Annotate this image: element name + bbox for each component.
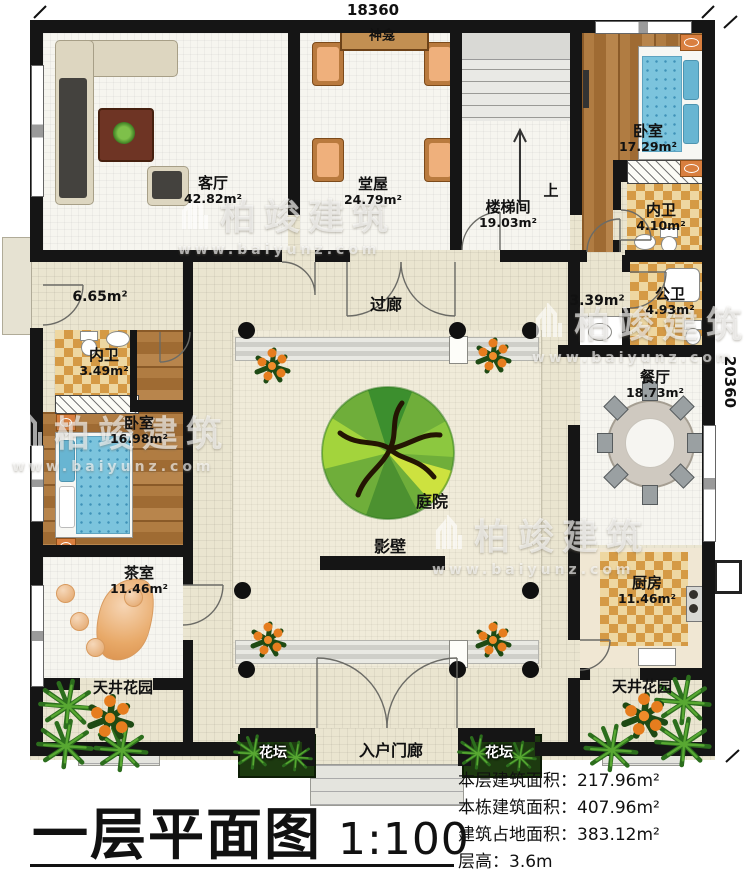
window xyxy=(703,425,716,542)
kitchen-sink xyxy=(638,648,676,666)
bed-pillow xyxy=(683,104,699,144)
room-label-courtyard: 庭院 xyxy=(416,493,448,511)
label-flowerbed-e: 花坛 xyxy=(485,745,513,761)
toilet xyxy=(685,328,701,345)
wall-segment xyxy=(183,640,193,756)
column-dot xyxy=(238,322,255,339)
floor-plan-page: 柏竣建筑 www.baiyunz.com 柏竣建筑 www.baiyunz.co… xyxy=(0,0,750,890)
wall-segment xyxy=(622,255,630,272)
wall-segment xyxy=(137,400,183,412)
room-label-shrine: 神龛 xyxy=(369,30,395,45)
wall-segment xyxy=(613,182,621,210)
wall-segment xyxy=(625,250,715,262)
stove-burner xyxy=(689,604,698,613)
room-label-corridor: 过廊 xyxy=(370,296,402,314)
column-dot xyxy=(522,582,539,599)
wall-segment xyxy=(315,250,350,262)
bed-pillow xyxy=(59,486,75,528)
tea-cushion xyxy=(70,612,89,631)
wall-segment xyxy=(568,678,580,756)
stat-line: 本栋建筑面积：407.96m² xyxy=(458,795,660,822)
nightstand xyxy=(56,414,76,431)
stat-line: 建筑占地面积：383.12m² xyxy=(458,822,660,849)
wall-segment xyxy=(30,742,240,756)
plan-title: 一层平面图1:100 xyxy=(32,790,470,871)
room-label-porch: 入户门廊 xyxy=(359,742,423,760)
wash-sink xyxy=(588,323,612,341)
wall-segment xyxy=(568,425,580,640)
wall-segment xyxy=(702,20,715,756)
courtyard-floor xyxy=(232,330,542,668)
dining-chair xyxy=(642,485,658,505)
room-label-bath-ne: 内卫 4.10m² xyxy=(636,202,685,234)
column-dot xyxy=(522,322,539,339)
tea-cushion xyxy=(56,584,75,603)
wall-segment xyxy=(535,742,715,756)
wall-segment xyxy=(458,728,471,766)
room-label-living: 客厅 42.82m² xyxy=(184,175,242,207)
dimension-top: 18360 xyxy=(347,1,399,19)
dining-chair xyxy=(597,433,613,453)
walkway-north xyxy=(235,337,539,361)
wall-segment xyxy=(288,33,300,215)
dining-chair xyxy=(687,433,703,453)
screen-wall xyxy=(320,556,445,570)
walkway-south xyxy=(235,640,539,664)
armchair-cushion xyxy=(152,171,182,199)
pillar xyxy=(449,336,468,364)
wall-segment xyxy=(613,160,627,182)
label-entry-area: 6.65m² xyxy=(72,289,127,305)
label-wash-area: 3.39m² xyxy=(569,293,624,309)
window xyxy=(595,21,692,34)
washbasin xyxy=(634,234,656,250)
wall-segment xyxy=(613,240,621,252)
bedroom-ne-cabinet xyxy=(583,70,589,108)
bedroom-ne-vestibule xyxy=(582,160,613,252)
stat-line: 层高：3.6m xyxy=(458,849,660,876)
nightstand xyxy=(680,160,703,177)
column-dot xyxy=(238,661,255,678)
wall-segment xyxy=(580,668,590,680)
room-label-bath-w: 内卫 3.49m² xyxy=(79,347,128,379)
wall-segment xyxy=(43,678,80,690)
stair-landing xyxy=(462,33,570,60)
stair-up-label: 上 xyxy=(543,182,558,199)
wall-segment xyxy=(130,330,137,412)
hall-chair xyxy=(312,138,344,182)
room-label-patio-se: 天井花园 xyxy=(612,678,672,695)
room-label-public-bath: 公卫 4.93m² xyxy=(645,286,694,318)
room-label-tea: 茶室 11.46m² xyxy=(110,565,168,597)
room-label-kitchen: 厨房 11.46m² xyxy=(618,575,676,607)
room-label-bedroom-w: 卧室 16.98m² xyxy=(110,415,168,447)
wall-segment xyxy=(43,545,183,557)
wall-segment xyxy=(450,33,462,250)
column-dot xyxy=(449,322,466,339)
plan-stats: 本层建筑面积：217.96m² 本栋建筑面积：407.96m² 建筑占地面积：3… xyxy=(458,768,660,876)
label-screen-wall: 影壁 xyxy=(374,538,406,556)
wall-segment xyxy=(183,262,193,585)
window xyxy=(31,65,44,197)
wall-segment xyxy=(30,328,43,756)
bed-mattress xyxy=(76,436,130,534)
window xyxy=(31,585,44,687)
flue-box xyxy=(714,560,742,594)
stat-line: 本层建筑面积：217.96m² xyxy=(458,768,660,795)
column-dot xyxy=(522,661,539,678)
side-porch xyxy=(2,237,32,335)
column-dot xyxy=(234,582,251,599)
dimension-right: 20360 xyxy=(721,356,739,408)
room-label-dining: 餐厅 18.73m² xyxy=(626,369,684,401)
dining-table-top xyxy=(625,418,675,468)
window xyxy=(31,445,44,522)
stove-burner xyxy=(689,590,698,599)
room-label-patio-sw: 天井花园 xyxy=(93,679,153,696)
tea-cushion xyxy=(86,638,105,657)
bed-pillow xyxy=(683,60,699,100)
table-plant xyxy=(113,122,135,144)
wall-segment xyxy=(153,678,183,690)
washbasin xyxy=(106,331,130,347)
wall-segment xyxy=(30,250,282,262)
wall-segment xyxy=(622,308,630,345)
room-label-stairwell: 楼梯间 19.03m² xyxy=(479,199,537,231)
title-underline xyxy=(30,864,454,867)
closet-w xyxy=(55,395,139,414)
nightstand xyxy=(680,34,703,51)
bed-pillow xyxy=(59,440,75,482)
room-label-hall: 堂屋 24.79m² xyxy=(344,176,402,208)
column-dot xyxy=(449,661,466,678)
wall-segment xyxy=(302,728,315,766)
room-label-bedroom-ne: 卧室 17.29m² xyxy=(619,123,677,155)
wall-segment xyxy=(500,250,587,262)
sofa-cushions xyxy=(59,78,87,198)
plan-scale: 1:100 xyxy=(338,814,470,865)
wall-segment xyxy=(570,33,582,215)
label-flowerbed-w: 花坛 xyxy=(259,745,287,761)
